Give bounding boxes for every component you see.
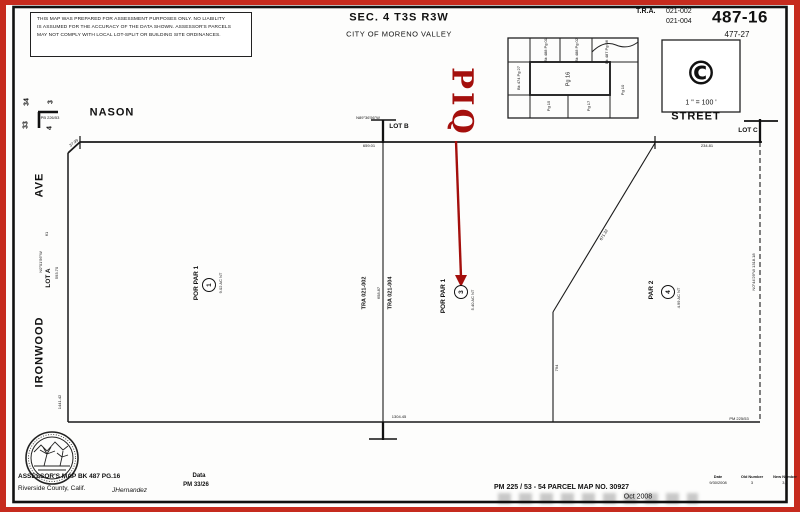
section-number-4: 4 (47, 126, 54, 130)
street-name-nason: NASON (90, 108, 135, 119)
parcel-1-area: 9.02 AC NT (219, 273, 223, 294)
lot-a-label: LOT A (46, 268, 53, 287)
index-map-grid (508, 38, 638, 118)
tra-code-1: 021-002 (666, 8, 692, 15)
index-cell-bk488-02: Bk 488 Pg 02 (575, 38, 579, 62)
section-number-34: 34 (24, 98, 31, 106)
index-cell-pg10: Pg 10 (621, 85, 625, 95)
top-dimension-right: 234.81 (701, 144, 713, 148)
disclaimer-line3: MAY NOT COMPLY WITH LOCAL LOT-SPLIT OR B… (37, 32, 251, 40)
parcel-boundaries (68, 142, 762, 422)
parcel-1-name: POR PAR 1 (194, 266, 201, 301)
assessor-map-title: ASSESSOR'S MAP BK 487 PG.16 (18, 474, 120, 481)
street-name-ironwood: IRONWOOD (35, 317, 46, 388)
revision-old-number: 3 (736, 480, 768, 486)
copyright-icon: © (685, 57, 718, 90)
lot-c-label: LOT C (738, 128, 758, 135)
book-page-number: 487-16 (712, 9, 768, 26)
street-name-ave: AVE (35, 173, 46, 198)
disclaimer-line1: THIS MAP WAS PREPARED FOR ASSESSMENT PUR… (37, 16, 251, 24)
revision-table-row: 9/30/2008 3 3,4 (700, 480, 800, 486)
parcel-3-name: POR PAR 1 (441, 279, 448, 314)
section-number-33: 33 (23, 121, 30, 129)
survey-ticks (38, 112, 778, 440)
map-geometry (0, 0, 800, 512)
tra-code-2: 021-004 (666, 18, 692, 25)
west-dimension-small: 61 (45, 232, 49, 236)
street-name-street: STREET (671, 112, 720, 123)
tra-label: T.R.A. (636, 8, 655, 15)
top-bearing: N89°36'56"W (356, 116, 380, 120)
piq-callout-label: PIQ (448, 67, 477, 137)
parcel-4-number-circle: 4 (661, 285, 675, 299)
revision-date: 9/30/2008 (700, 480, 736, 486)
revision-table: Date Old Number New Number 9/30/2008 3 3… (700, 474, 800, 486)
city-title: CITY OF MORENO VALLEY (346, 30, 452, 38)
scale-text: 1 " = 100 ' (685, 100, 716, 107)
data-label: Data (192, 473, 205, 479)
revision-new-number: 3,4 (768, 480, 800, 486)
index-cell-bk474: Bk 474 Pg 27 (517, 66, 521, 90)
west-dimension: 593.70 (55, 267, 59, 279)
assessor-map-county: Riverside County, Calif. (18, 486, 85, 493)
index-cell-pg16: Pg 16 (566, 72, 572, 86)
index-cell-pg17: Pg 17 (587, 101, 591, 111)
cross-reference-page: 477-27 (725, 31, 750, 39)
west-bearing: N0°01'56"W (39, 251, 43, 273)
corner-pm-reference: PM 225/53 (729, 417, 748, 421)
center-line-dimension: 658.87 (377, 287, 381, 299)
east-bearing-dimension: N0°44'29"W 1318.18 (752, 253, 756, 290)
assessor-map-page: THIS MAP WAS PREPARED FOR ASSESSMENT PUR… (0, 0, 800, 512)
section-title: SEC. 4 T3S R3W (349, 13, 449, 24)
tra-right-label: TRA 021-004 (388, 277, 394, 310)
parcel-map-reference: PM 225 / 53 - 54 PARCEL MAP NO. 30927 (494, 484, 629, 491)
disclaimer-line2: IS ASSUMED FOR THE ACCURACY OF THE DATA … (37, 24, 251, 32)
disclaimer-box: THIS MAP WAS PREPARED FOR ASSESSMENT PUR… (30, 12, 252, 57)
tra-left-label: TRA 021-002 (362, 277, 368, 310)
west-total-dimension: 1441.42 (58, 395, 62, 409)
segment-dimension: 794 (555, 365, 559, 372)
map-date: Oct 2008 (624, 494, 652, 501)
bottom-dimension: 1304.45 (392, 415, 406, 419)
parcel-4-name: PAR 2 (649, 281, 656, 300)
drafter-signature: JHernandez (112, 488, 147, 495)
parcel-1-number-circle: 1 (202, 278, 216, 292)
data-value: PM 33/26 (183, 482, 209, 488)
lot-b-label: LOT B (389, 124, 409, 131)
top-dimension-left: 659.01 (363, 144, 375, 148)
parcel-4-area: 4.99 AC NT (677, 288, 681, 309)
plat-book-reference: PB 226/53 (41, 116, 60, 120)
section-number-3: 3 (48, 100, 55, 104)
piq-arrow (455, 141, 467, 287)
index-cell-bk487-06: Bk 487 Pg 06 (605, 40, 609, 64)
parcel-3-area: 5.40 AC NT (471, 290, 475, 311)
index-cell-bk488-01: Bk 488 Pg 01 (544, 38, 548, 62)
parcel-3-number-circle: 3 (454, 285, 468, 299)
index-cell-pg15: Pg 15 (547, 101, 551, 111)
